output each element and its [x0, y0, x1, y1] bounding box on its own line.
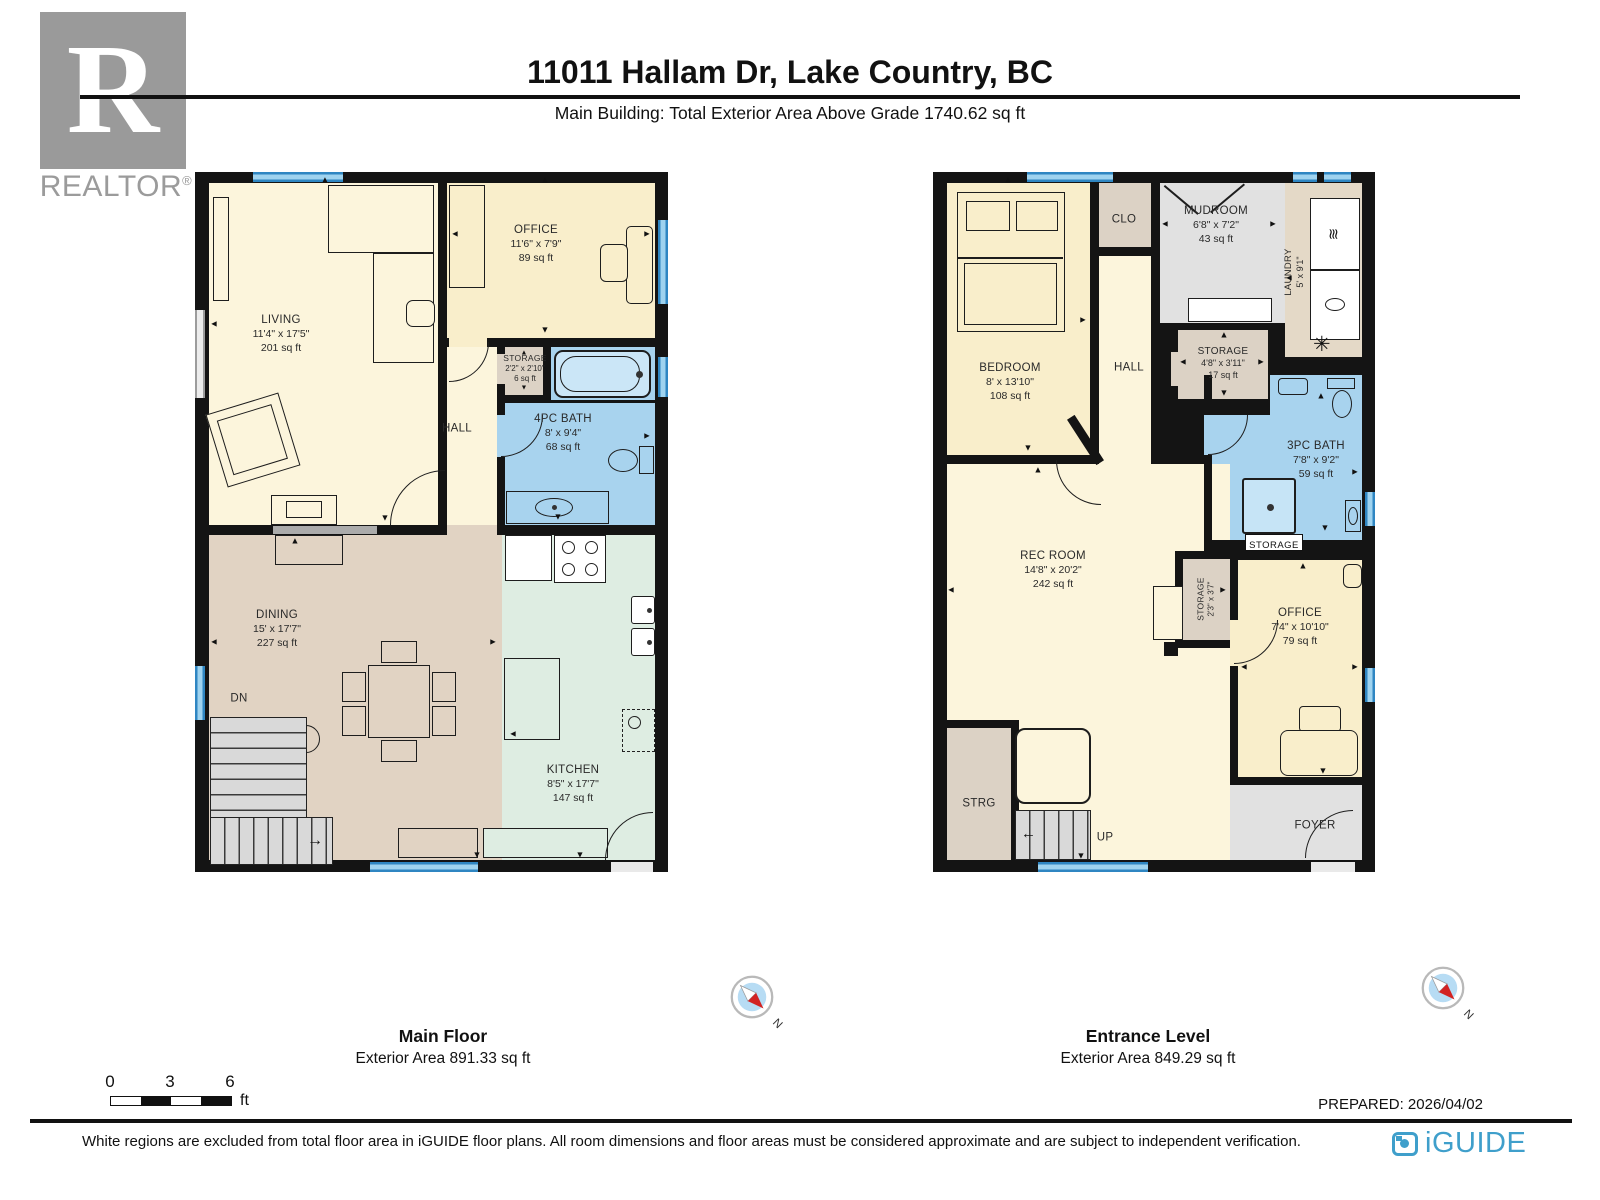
- burner: [562, 541, 575, 554]
- sink-basin-2: [631, 628, 655, 656]
- window-top-living: [253, 172, 343, 182]
- iguide-icon-lens: [1400, 1139, 1409, 1148]
- stairs-up-arrow: ←: [1021, 825, 1036, 842]
- rec-cabinet: [1153, 586, 1183, 640]
- dim-arrow: ▼: [541, 326, 550, 335]
- realtor-logo-text: REALTOR®: [30, 170, 202, 204]
- main-floor-title-block: Main Floor Exterior Area 891.33 sq ft: [293, 1026, 593, 1068]
- dim-arrow: ▼: [1077, 852, 1086, 861]
- room-label-strg: STRG: [962, 797, 995, 812]
- dim-arrow: ◄: [509, 730, 518, 739]
- room-label-living: LIVING 11'4" x 17'5" 201 sq ft: [253, 313, 310, 355]
- dryer: [1310, 270, 1360, 340]
- dining-chair: [432, 672, 456, 702]
- dim-arrow: ▲: [1299, 562, 1308, 571]
- dishwasher-dial: [628, 716, 641, 729]
- dishwasher: [622, 709, 655, 752]
- dining-chair: [381, 641, 417, 663]
- dim-arrow: ▲: [541, 176, 550, 185]
- dim-arrow: ▼: [381, 514, 390, 523]
- toilet-bowl-b: [1332, 390, 1352, 418]
- room-label-storage3: STORAGE 2'3" x 3'7": [1195, 577, 1216, 621]
- hall-dining-gap: [447, 525, 497, 535]
- compass-icon: [729, 974, 775, 1020]
- kitchen-counter: [505, 535, 552, 581]
- dim-arrow: ◄: [947, 586, 956, 595]
- dim-arrow: ▼: [554, 513, 563, 522]
- room-label-bedroom: BEDROOM 8' x 13'10" 108 sq ft: [979, 361, 1041, 403]
- dim-arrow: ►: [1079, 316, 1088, 325]
- dim-arrow: ►: [1269, 220, 1278, 229]
- floor-name: Entrance Level: [998, 1026, 1298, 1047]
- floor-area: Exterior Area 849.29 sq ft: [998, 1050, 1298, 1068]
- dim-arrow: ►: [1219, 586, 1228, 595]
- registered-mark: ®: [182, 173, 192, 188]
- floor-area: Exterior Area 891.33 sq ft: [293, 1050, 593, 1068]
- wall-bath-left: [1204, 375, 1212, 540]
- wall-strg-top: [947, 720, 1019, 728]
- floor-name: Main Floor: [293, 1026, 593, 1047]
- scale-tick-6: 6: [218, 1072, 242, 1092]
- room-label-hall: HALL: [442, 422, 472, 437]
- stairs-label-dn: DN: [230, 692, 247, 707]
- patio-door-left: [195, 310, 205, 398]
- footer-rule: [30, 1119, 1572, 1123]
- room-label-bath3: 3PC BATH 7'8" x 9'2" 59 sq ft: [1287, 439, 1345, 481]
- wall-office-bottom: [1230, 777, 1362, 785]
- tv-stand: [271, 495, 337, 525]
- dim-arrow: ▼: [521, 385, 528, 392]
- dim-arrow: ◄: [1179, 358, 1188, 367]
- bed: [957, 192, 1065, 332]
- dim-arrow: ◄: [1161, 220, 1170, 229]
- foyer-door-gap: [1311, 862, 1355, 872]
- floorplan-page: { "header": { "logo_text": "REALTOR", "l…: [0, 0, 1600, 1200]
- scale-unit: ft: [240, 1092, 249, 1110]
- scale-tick-0: 0: [98, 1072, 122, 1092]
- bath-shelf: [1278, 378, 1308, 395]
- dim-arrow: ▼: [1319, 767, 1328, 776]
- sofa-top: [328, 185, 434, 253]
- scale-seg: [201, 1097, 231, 1105]
- dim-arrow: ►: [643, 230, 652, 239]
- living-halfwall: [273, 526, 377, 534]
- shower-drain: [1267, 504, 1274, 511]
- window-tub-right: [658, 357, 668, 397]
- scale-bar: 0 3 6 ft: [98, 1072, 278, 1112]
- tub-faucet: [636, 371, 643, 378]
- window-bath-right: [1365, 492, 1375, 526]
- window-bottom-b: [1038, 862, 1148, 872]
- buffet: [275, 535, 343, 565]
- dining-chair: [342, 706, 366, 736]
- blanket: [964, 263, 1057, 325]
- dim-arrow: ▲: [1220, 331, 1229, 340]
- room-label-storage: STORAGE 2'2" x 2'10" 6 sq ft: [503, 353, 547, 385]
- room-label-hall-b: HALL: [1114, 361, 1144, 376]
- dim-arrow: ►: [1351, 468, 1360, 477]
- compass-main-floor: N: [729, 974, 775, 1020]
- window-office-right-b: [1365, 668, 1375, 702]
- office-chair-b: [1299, 706, 1341, 732]
- burner: [585, 563, 598, 576]
- dim-arrow: ▲: [1004, 176, 1013, 185]
- window-top-bedroom: [1027, 172, 1113, 182]
- room-label-office-b: OFFICE 7'4" x 10'10" 79 sq ft: [1271, 606, 1329, 648]
- dim-arrow: ▼: [576, 851, 585, 860]
- page-title: 11011 Hallam Dr, Lake Country, BC: [0, 54, 1580, 91]
- iguide-logo: iGUIDE: [1392, 1127, 1526, 1160]
- sink-basin-1: [631, 596, 655, 624]
- rec-post: [1164, 642, 1178, 656]
- room-label-recroom: REC ROOM 14'8" x 20'2" 242 sq ft: [1020, 549, 1086, 591]
- dining-chair: [432, 706, 456, 736]
- storage-label-box: STORAGE: [1245, 534, 1303, 551]
- stove: [554, 535, 606, 583]
- dim-arrow: ◄: [210, 320, 219, 329]
- bathtub: [554, 350, 651, 398]
- room-label-storage17: STORAGE 4'8" x 3'11" 17 sq ft: [1198, 345, 1249, 381]
- dim-arrow: ►: [1351, 663, 1360, 672]
- window-top-laundry-2: [1324, 172, 1351, 182]
- ottoman: [406, 300, 435, 327]
- blanket-line: [958, 257, 1063, 259]
- scale-bar-segments: [110, 1096, 232, 1106]
- footer-disclaimer: White regions are excluded from total fl…: [82, 1133, 1382, 1150]
- dining-chair: [381, 740, 417, 762]
- prepared-date: PREPARED: 2026/04/02: [1200, 1096, 1483, 1113]
- toilet-bowl: [608, 449, 638, 472]
- mudroom-cabinet: [1188, 298, 1272, 322]
- vanity-drain: [552, 505, 557, 510]
- dim-arrow: ▲: [291, 537, 300, 546]
- room-label-kitchen: KITCHEN 8'5" x 17'7" 147 sq ft: [547, 763, 600, 805]
- compass-icon: [1420, 965, 1466, 1011]
- room-label-mudroom: MUDROOM 6'8" x 7'2" 43 sq ft: [1184, 204, 1248, 246]
- burner: [562, 563, 575, 576]
- bath-sink-b: [1345, 500, 1361, 532]
- main-floor-plan: → ▲ ▲ ▼ ◄ ► ◄ ▼ ▲ ▼ ► ▼ ◄ ► ▲ ▼ ▼ ◄ LIVI…: [195, 172, 668, 872]
- toilet-tank: [639, 446, 654, 474]
- tv-stand-inner: [286, 501, 322, 518]
- window-left-lower: [195, 666, 205, 720]
- pillow: [1016, 201, 1058, 231]
- dining-table: [368, 665, 430, 738]
- strg-floor: [947, 728, 1011, 860]
- office-chair: [600, 244, 628, 282]
- room-label-clo: CLO: [1112, 213, 1137, 228]
- sink-drain: [647, 640, 652, 645]
- dim-arrow: ►: [489, 638, 498, 647]
- storage-boxed-text: STORAGE: [1249, 540, 1299, 551]
- bench-2: [483, 828, 608, 858]
- heat-icon: ≋: [1324, 228, 1342, 241]
- area-rug-inner: [217, 404, 288, 475]
- bench-1: [398, 828, 478, 858]
- scale-seg: [171, 1097, 201, 1105]
- dim-arrow: ►: [643, 432, 652, 441]
- room-label-bath: 4PC BATH 8' x 9'4" 68 sq ft: [534, 412, 592, 454]
- page-subtitle: Main Building: Total Exterior Area Above…: [0, 103, 1580, 124]
- ceiling-fan-icon: ✳: [1313, 332, 1331, 357]
- dryer-door-icon: [1325, 298, 1345, 311]
- dim-arrow: ◄: [451, 230, 460, 239]
- window-office-right: [658, 220, 668, 304]
- washer: ≋: [1310, 198, 1360, 270]
- dim-arrow: ◄: [210, 638, 219, 647]
- shower: [1242, 478, 1296, 534]
- dim-arrow: ◄: [1240, 663, 1249, 672]
- realtor-wordmark: REALTOR: [40, 170, 182, 203]
- scale-tick-3: 3: [158, 1072, 182, 1092]
- dining-chair: [342, 672, 366, 702]
- window-bottom: [370, 862, 478, 872]
- entrance-level-plan: ≋ ✳ STORAGE ← ▲ ► ▼ ▲ ◄ ► ◄ ▲ ▼ ◄ ► ▲ ▼ …: [933, 172, 1375, 872]
- storage17-door-gap: [1171, 352, 1178, 386]
- toilet-tank-b: [1327, 378, 1355, 389]
- window-bench: [213, 197, 229, 301]
- stairs-down-upper: [210, 717, 307, 819]
- entrance-level-title-block: Entrance Level Exterior Area 849.29 sq f…: [998, 1026, 1298, 1068]
- dim-arrow: ▲: [521, 350, 528, 357]
- dim-arrow: ▼: [473, 851, 482, 860]
- iguide-wordmark: iGUIDE: [1425, 1127, 1526, 1160]
- pillow: [966, 201, 1010, 231]
- title-rule: [80, 95, 1520, 99]
- bathtub-inner: [560, 356, 640, 392]
- dim-arrow: ▲: [1034, 466, 1043, 475]
- dim-arrow: ◄: [1285, 274, 1294, 283]
- stair-landing: [1015, 728, 1091, 804]
- dim-arrow: ▼: [1220, 389, 1229, 398]
- burner: [585, 541, 598, 554]
- scale-seg: [141, 1097, 171, 1105]
- kitchen-door-gap: [611, 862, 653, 872]
- sink-drain: [647, 608, 652, 613]
- dim-arrow: ▲: [321, 176, 330, 185]
- stairs-label-up: UP: [1097, 831, 1114, 846]
- compass-entrance-level: N: [1420, 965, 1466, 1011]
- room-label-office: OFFICE 11'6" x 7'9" 89 sq ft: [511, 223, 562, 265]
- office-side-table: [1343, 564, 1362, 588]
- dim-arrow: ▲: [1317, 392, 1326, 401]
- room-label-foyer: FOYER: [1294, 819, 1335, 834]
- bath-sink-oval: [1348, 507, 1358, 525]
- iguide-camera-icon: [1392, 1132, 1418, 1156]
- kitchen-sinks: [631, 596, 655, 658]
- dim-arrow: ▼: [1024, 444, 1033, 453]
- stairs-down-arrow: →: [307, 832, 323, 850]
- dim-arrow: ▼: [1321, 524, 1330, 533]
- room-label-dining: DINING 15' x 17'7" 227 sq ft: [253, 608, 301, 650]
- window-top-laundry-1: [1293, 172, 1317, 182]
- scale-seg: [111, 1097, 141, 1105]
- dim-arrow: ►: [1257, 358, 1266, 367]
